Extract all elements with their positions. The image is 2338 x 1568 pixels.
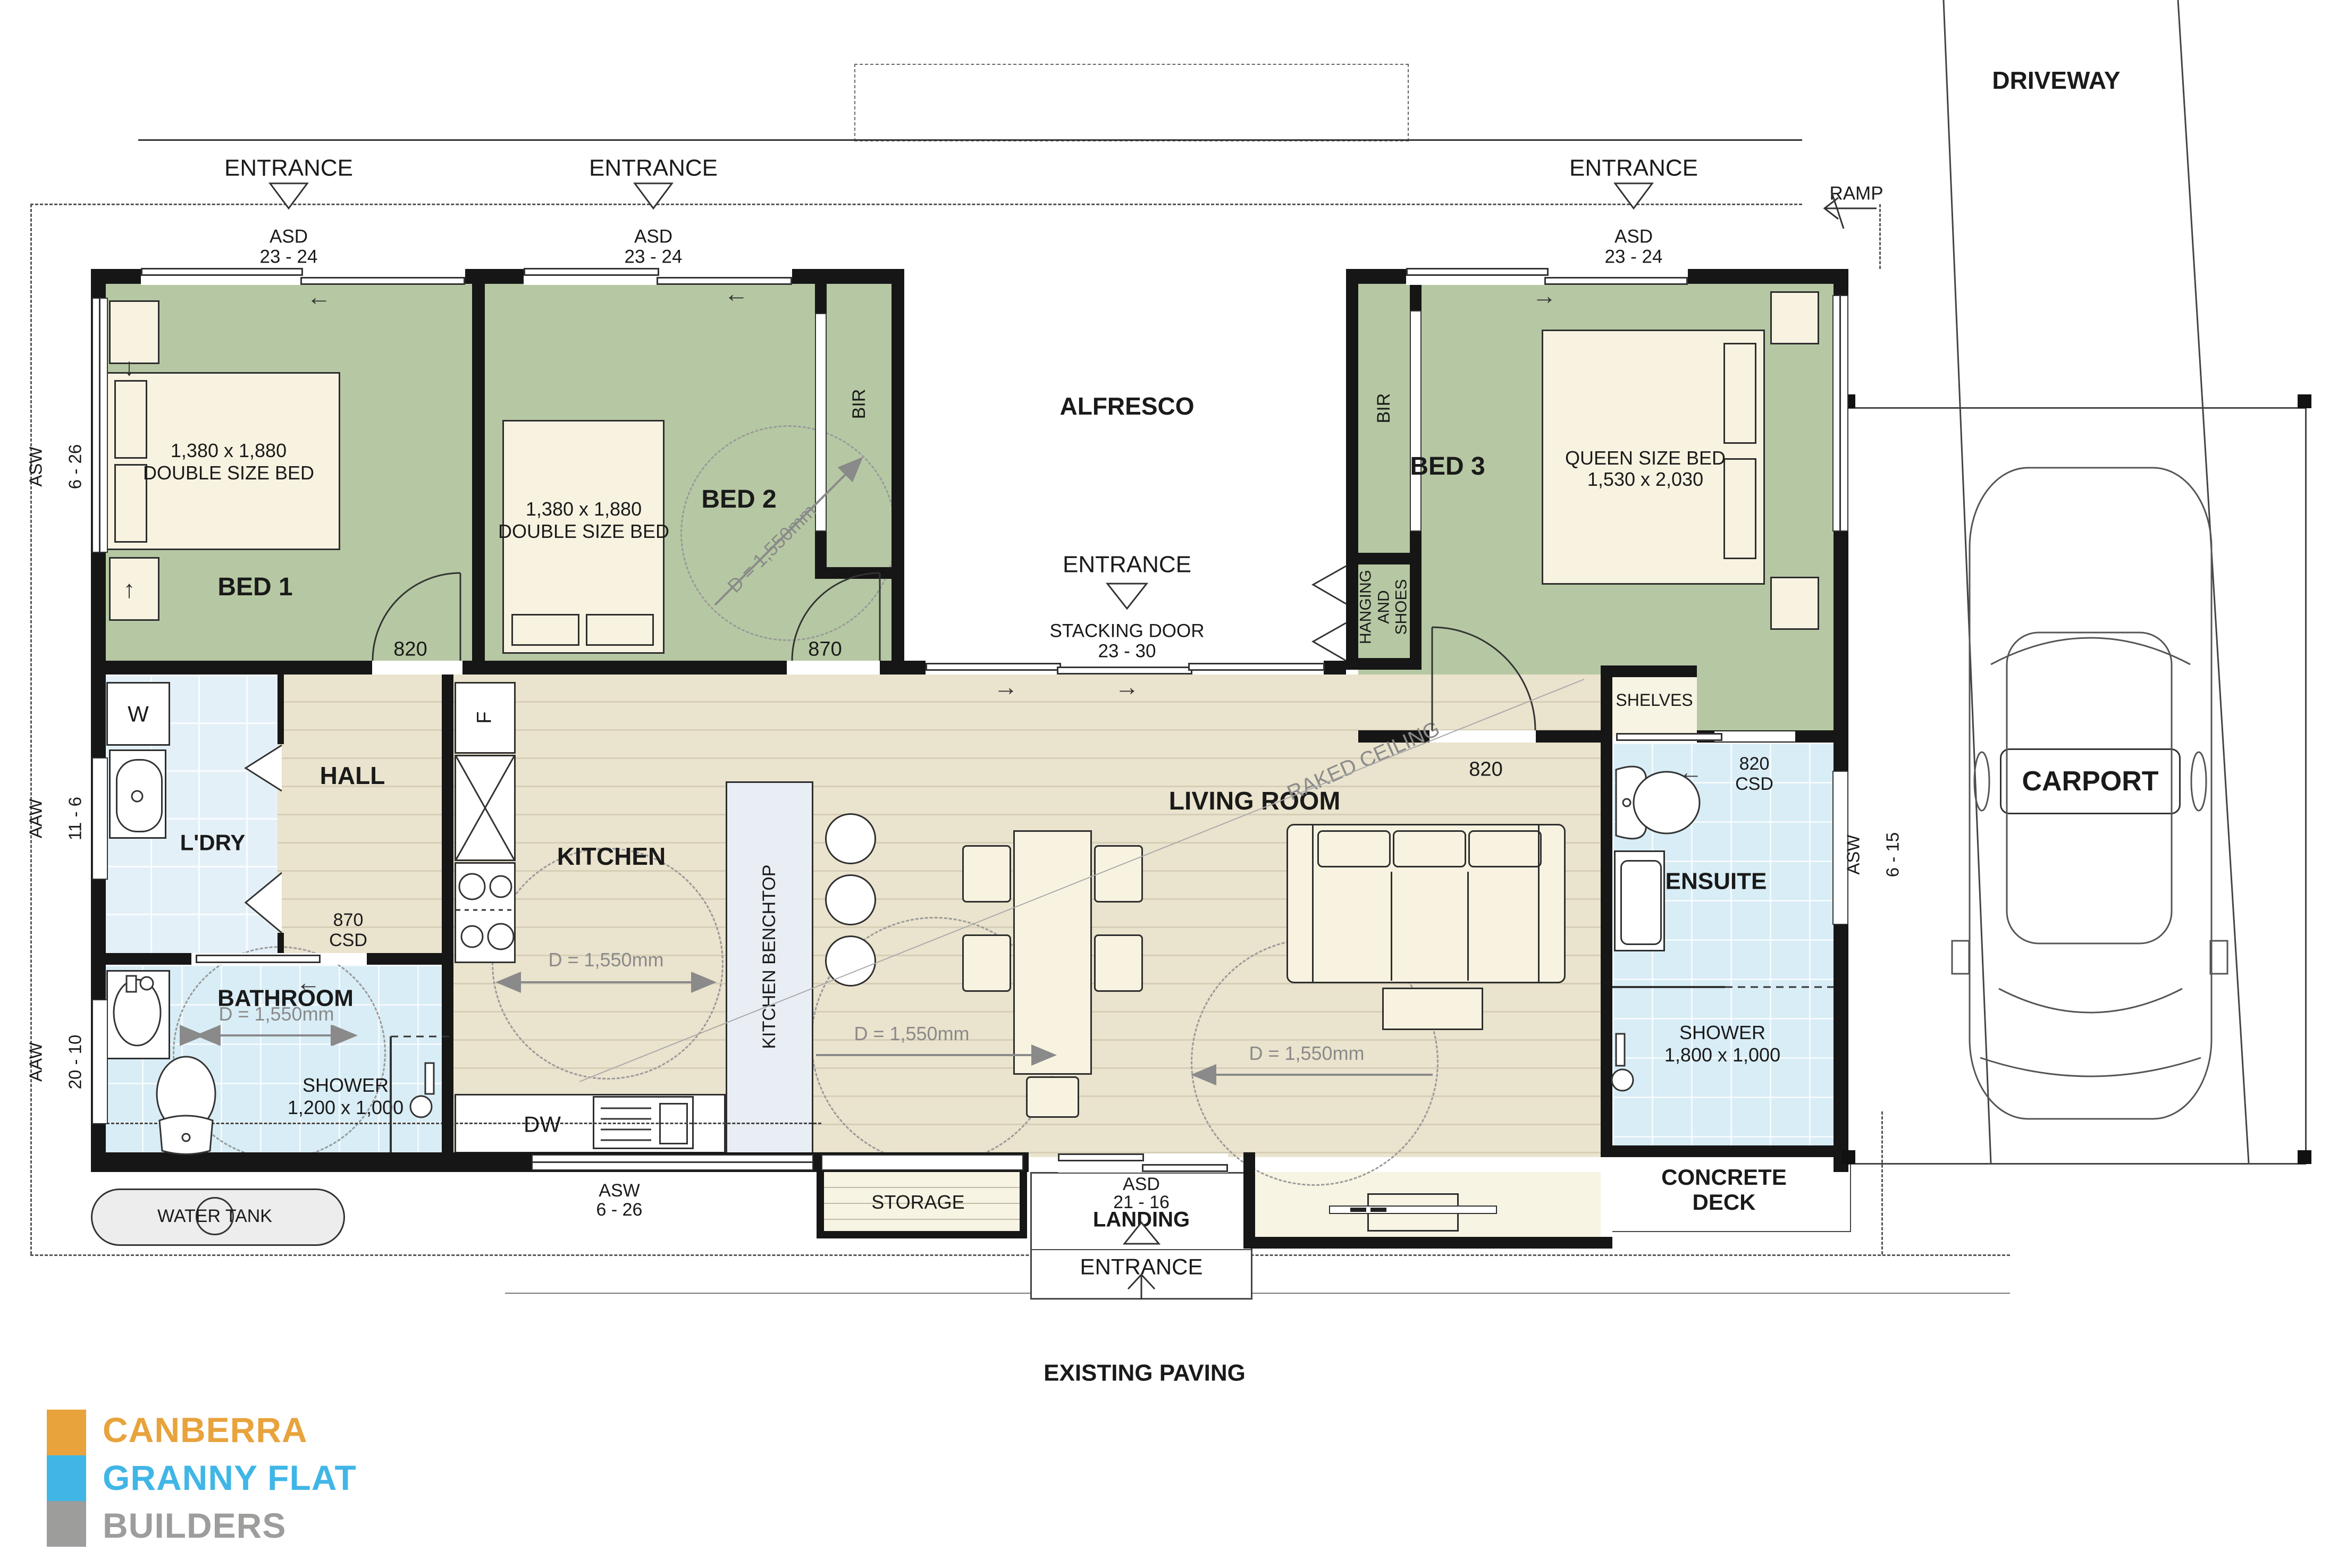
entrance-label: ENTRANCE — [589, 155, 718, 181]
wall — [1346, 658, 1422, 670]
bath-csd-size: 870 — [333, 910, 364, 930]
wall — [472, 281, 485, 661]
bed3-nightstand-2 — [1770, 577, 1819, 630]
hall-label: HALL — [320, 762, 385, 790]
bed3-asd-panel — [1406, 268, 1549, 276]
landing-asd-code: ASD — [1123, 1174, 1160, 1194]
bed3-nightstand-1 — [1770, 291, 1819, 344]
wall — [277, 933, 284, 953]
clearance-circle-bathroom — [173, 946, 386, 1159]
wall — [1601, 743, 1612, 1157]
ensuite-csd-code: CSD — [1735, 774, 1773, 794]
dining-chair-right-1 — [1094, 845, 1143, 903]
fridge-label: F — [474, 711, 497, 723]
dishwasher-label: DW — [524, 1111, 561, 1136]
bed2-door-opening — [787, 661, 880, 675]
ramp-label: RAMP — [1829, 183, 1883, 204]
eave-dashed-left — [30, 204, 32, 1254]
wall — [815, 281, 827, 313]
bed3-size: 1,530 x 2,030 — [1587, 469, 1703, 490]
carport-post — [1841, 1150, 1855, 1164]
wall — [1243, 1152, 1255, 1249]
aaw-size: 20 - 10 — [65, 1035, 85, 1090]
ensuite-csd-size: 820 — [1739, 754, 1770, 774]
aaw-ldry-label: AAW 11 - 6 — [7, 797, 105, 840]
aaw-code: AAW — [27, 1035, 46, 1090]
bath-csd-code: CSD — [329, 930, 367, 950]
entrance-label: ENTRANCE — [1569, 155, 1698, 181]
laundry-tub-bowl — [116, 759, 163, 832]
bed3-asd-panel — [1544, 277, 1688, 285]
stacking-door-label: STACKING DOOR — [1049, 620, 1204, 641]
aaw-bath-label: AAW 20 - 10 — [7, 1035, 105, 1090]
kitchen-label: KITCHEN — [557, 843, 666, 871]
carport-bottom-line — [1848, 1163, 2306, 1165]
deck-bottom-line — [1612, 1231, 1851, 1232]
bed1-pillow-2 — [114, 464, 147, 543]
ensuite-label: ENSUITE — [1666, 868, 1767, 894]
logo-bar-gray — [47, 1501, 86, 1547]
stool-3 — [825, 935, 876, 987]
bed3-type: QUEEN SIZE BED — [1565, 448, 1726, 469]
bed1-type: DOUBLE SIZE BED — [143, 462, 314, 484]
eave-dashed-bottom — [30, 1254, 2010, 1256]
stacking-arrow: → — [1115, 672, 1139, 701]
bed2-entry-arrow: ← — [724, 279, 749, 308]
benchtop-label: KITCHEN BENCHTOP — [759, 865, 779, 1049]
carport-top-line — [1848, 407, 2306, 409]
wall — [817, 1172, 824, 1238]
sofa-seat-divider-2 — [1467, 872, 1469, 981]
tv — [1329, 1205, 1497, 1214]
dining-chair-right-2 — [1094, 934, 1143, 992]
asw-size: 6 - 15 — [1883, 832, 1903, 877]
sofa-seat-divider-1 — [1391, 872, 1392, 981]
bed1-door-size: 820 — [393, 638, 427, 661]
dining-chair-left-1 — [962, 845, 1011, 903]
asw-kitchen-code: ASW — [599, 1181, 640, 1201]
logo-line2: GRANNY FLAT — [103, 1457, 357, 1498]
logo-line1: CANBERRA — [103, 1410, 308, 1450]
asw-left-label: ASW 6 - 26 — [7, 444, 105, 489]
bed1-door-opening — [372, 661, 462, 675]
carport-label: CARPORT — [2022, 766, 2158, 797]
sofa-arm-right — [1538, 824, 1540, 983]
driveway-label: DRIVEWAY — [1992, 67, 2120, 95]
storage-label: STORAGE — [871, 1192, 964, 1213]
wall — [442, 675, 453, 1157]
stool-1 — [825, 813, 876, 864]
wall — [1020, 1172, 1027, 1238]
cooktop — [455, 862, 516, 963]
bed3-label: BED 3 — [1410, 452, 1485, 481]
hanging-shoes-label: HANGING AND SHOES — [1357, 570, 1411, 644]
section-dashed-line — [106, 1123, 821, 1124]
stacking-arrow: → — [994, 672, 1018, 701]
bed3-pillow-2 — [1723, 458, 1756, 559]
carport-post — [2298, 1150, 2311, 1164]
asd-size: 23 - 24 — [625, 246, 683, 267]
bed3-door-opening — [1429, 730, 1536, 743]
bed1-window-arrow-up: ↑ — [123, 575, 136, 603]
roof-line — [138, 139, 1802, 141]
clearance-label-kitchen: D = 1,550mm — [548, 949, 663, 971]
deck-right-line — [1850, 1157, 1851, 1232]
stacking-door-panel — [926, 663, 1061, 671]
asw-size: 6 - 26 — [65, 444, 85, 489]
ensuite-shower-size: 1,800 x 1,000 — [1664, 1044, 1780, 1066]
kitchen-asw-mullion — [533, 1161, 812, 1163]
clearance-label-bath: D = 1,550mm — [218, 1004, 334, 1025]
bed3-robe-door — [1410, 310, 1422, 532]
ensuite-shower-label: SHOWER — [1679, 1022, 1765, 1043]
ramp-dashed — [1879, 204, 1881, 269]
bed2-door-size: 870 — [808, 638, 842, 661]
asw-kitchen-size: 6 - 26 — [596, 1200, 643, 1220]
stacking-door-panel — [1188, 663, 1325, 671]
bed1-entry-arrow: ← — [307, 282, 331, 311]
wall — [91, 661, 904, 675]
bath-shower-label: SHOWER — [302, 1075, 389, 1096]
wall — [1324, 661, 1346, 675]
wall — [815, 567, 903, 579]
bed1-asw-mullion — [99, 299, 100, 552]
bir-label: BIR — [1374, 393, 1394, 424]
asw-code: ASW — [27, 444, 46, 489]
aaw-code: AAW — [27, 797, 46, 840]
dining-chair-left-2 — [962, 934, 1011, 992]
bed2-asd-panel — [524, 268, 659, 276]
logo-bar-orange — [47, 1410, 86, 1455]
landing-asd-size: 21 - 16 — [1113, 1192, 1170, 1212]
bed1-label: BED 1 — [217, 573, 292, 602]
wall — [892, 269, 904, 675]
wall — [277, 675, 284, 744]
wall — [1601, 1145, 1848, 1157]
ensuite-csd-panel — [1616, 733, 1722, 741]
entrance-label: ENTRANCE — [224, 155, 353, 181]
wall — [1601, 665, 1697, 677]
alfresco-roof-dashed — [854, 64, 1409, 141]
paving-edge-line — [505, 1293, 2010, 1294]
logo-line3: BUILDERS — [103, 1505, 286, 1546]
sofa-cushion-3 — [1468, 830, 1542, 867]
concrete-deck-label: CONCRETE DECK — [1661, 1165, 1787, 1215]
washer-label: W — [128, 701, 149, 726]
asd-code: ASD — [1614, 226, 1653, 247]
bed3-pillow-1 — [1723, 343, 1756, 444]
asd-size: 23 - 24 — [1605, 246, 1663, 267]
asw-code: ASW — [1844, 832, 1864, 877]
ensuite-door-opening — [1714, 731, 1795, 741]
deck-dashed — [1881, 1111, 1883, 1254]
wall — [1243, 1237, 1612, 1249]
sofa-arm-left — [1312, 824, 1314, 983]
alfresco-label: ALFRESCO — [1060, 393, 1195, 420]
asd-size: 23 - 24 — [260, 246, 318, 267]
storage-window — [821, 1154, 1023, 1170]
ensuite-csd-arrow: ← — [1678, 757, 1703, 786]
ldry-label: L'DRY — [180, 830, 246, 855]
coffee-table — [1382, 988, 1483, 1030]
bed1-asd-panel — [141, 268, 303, 276]
bed2-size: 1,380 x 1,880 — [526, 499, 642, 520]
dining-table — [1013, 830, 1092, 1075]
sofa-cushion-2 — [1393, 830, 1466, 867]
asw-ensuite-label: ASW 6 - 15 — [1824, 832, 1923, 877]
shelves-label: SHELVES — [1616, 691, 1693, 710]
bed1-pillow-1 — [114, 380, 147, 459]
entrance-label: ENTRANCE — [1063, 551, 1191, 577]
dining-chair-bottom — [1026, 1076, 1079, 1118]
bath-shower-size: 1,200 x 1,000 — [288, 1097, 403, 1118]
carport-post — [2298, 394, 2311, 408]
bed3-door-size: 820 — [1469, 758, 1502, 781]
wall — [817, 1231, 1027, 1238]
bed2-pillow-1 — [511, 614, 579, 646]
existing-paving-label: EXISTING PAVING — [1044, 1360, 1246, 1386]
stacking-size-label: 23 - 30 — [1098, 640, 1156, 661]
bathroom-csd-panel — [196, 955, 321, 963]
wall — [904, 661, 926, 675]
aaw-size: 11 - 6 — [65, 797, 85, 840]
bed2-type: DOUBLE SIZE BED — [498, 521, 669, 542]
stool-2 — [825, 874, 876, 925]
eave-dashed-top — [30, 204, 1802, 205]
bed1-size: 1,380 x 1,880 — [171, 440, 287, 461]
wall — [1410, 553, 1422, 670]
bed1-window-arrow-down: ↓ — [123, 352, 136, 381]
wall — [1410, 281, 1422, 310]
bed3-entry-arrow: → — [1532, 281, 1557, 310]
driveway-lines — [1944, 0, 2249, 1163]
bath-vanity — [106, 970, 170, 1059]
landing-asd-panel — [1058, 1153, 1144, 1161]
entrance-label: ENTRANCE — [1080, 1254, 1202, 1279]
sofa-cushion-1 — [1317, 830, 1391, 867]
bed2-pillow-2 — [586, 614, 654, 646]
logo-bar-blue — [47, 1455, 86, 1501]
water-tank-label: WATER TANK — [157, 1206, 272, 1226]
wall — [1346, 269, 1358, 670]
carport-right-line — [2305, 407, 2307, 1164]
bed2-label: BED 2 — [701, 485, 776, 514]
clearance-label-living-left: D = 1,550mm — [854, 1023, 969, 1044]
bed2-robe-door — [815, 313, 827, 532]
pantry — [455, 755, 516, 861]
floor-plan: ENTRANCE ENTRANCE ENTRANCE ASD 23 - 24 A… — [0, 0, 2338, 1568]
clearance-label-living-right: D = 1,550mm — [1249, 1043, 1364, 1064]
landing-step-line — [1030, 1249, 1252, 1250]
bath-csd-arrow: ← — [296, 968, 321, 997]
asd-code: ASD — [270, 226, 308, 247]
asd-code: ASD — [634, 226, 672, 247]
ensuite-vanity-bowl — [1620, 860, 1662, 945]
bed3-side-mullion — [1839, 296, 1841, 530]
landing-asd-panel — [1142, 1164, 1228, 1172]
bir-label: BIR — [849, 389, 869, 419]
